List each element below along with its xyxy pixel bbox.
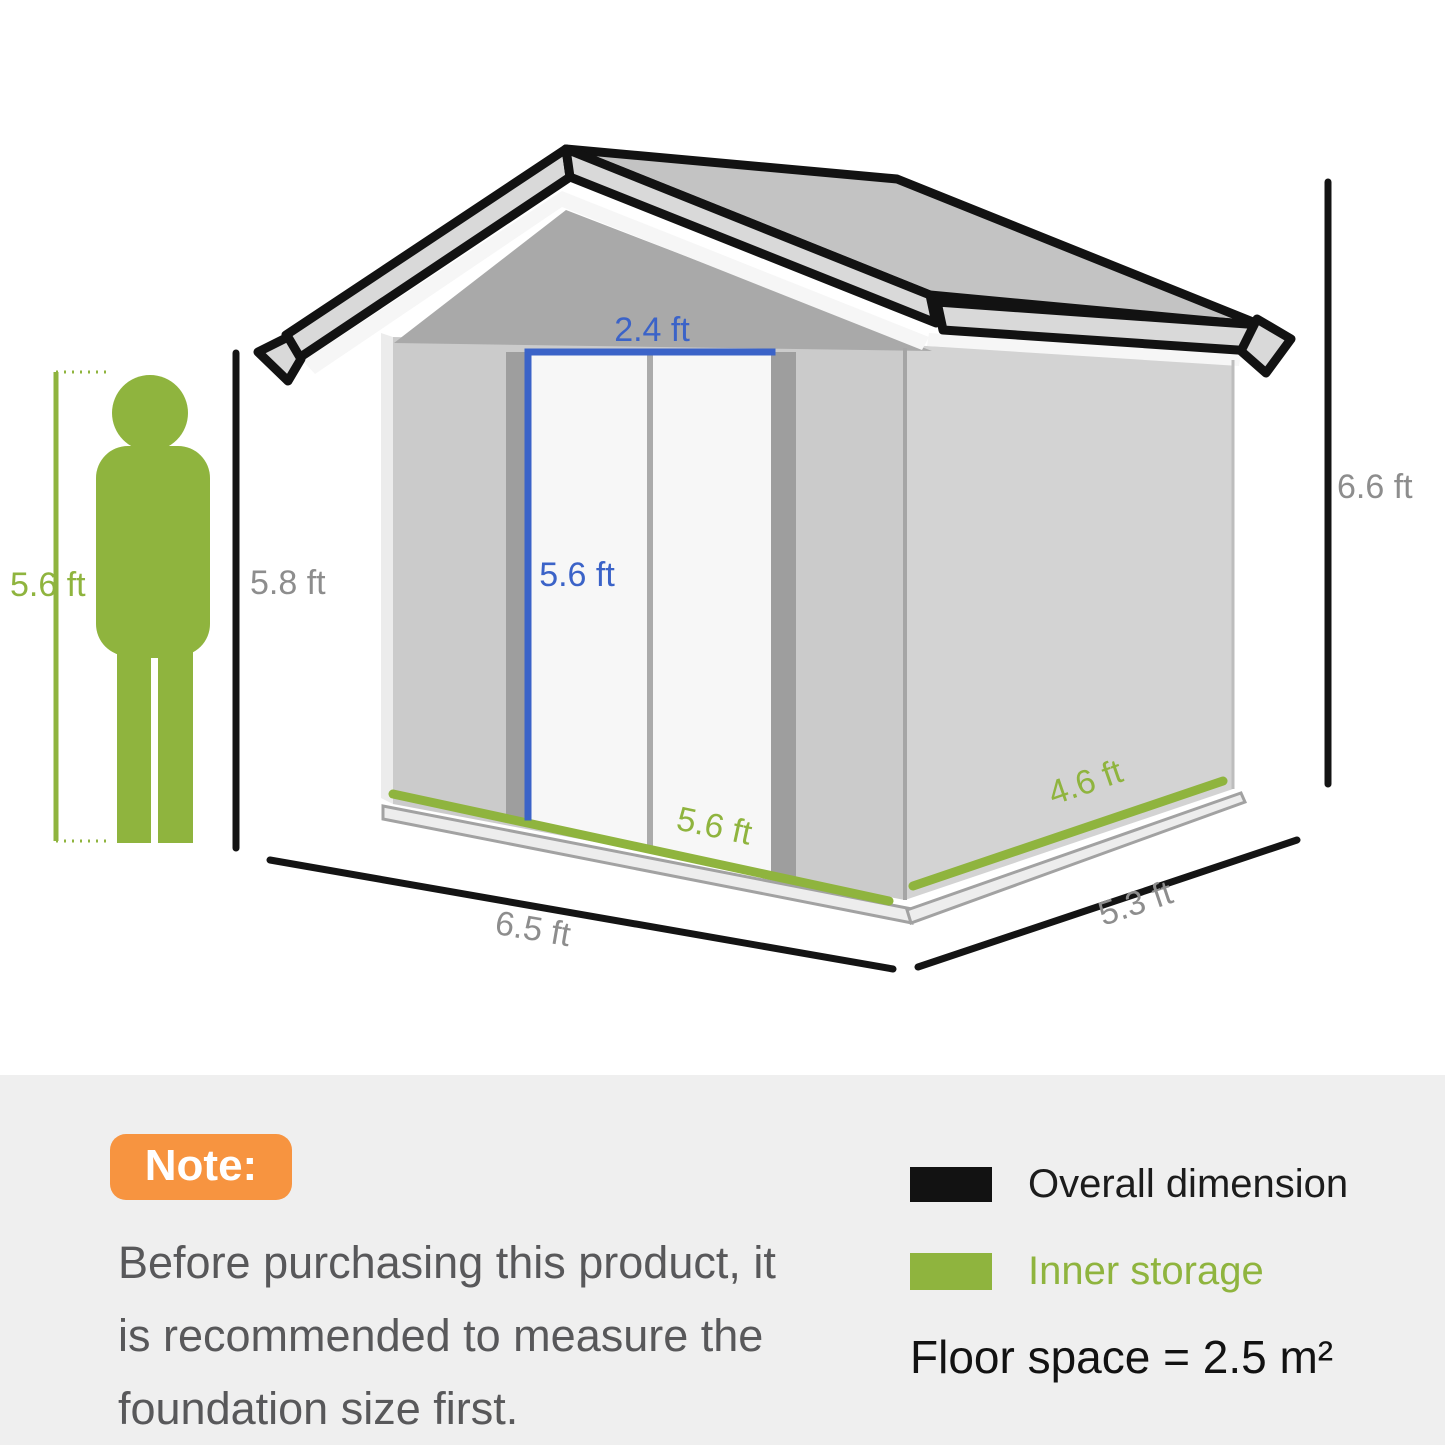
overall-depth-label: 5.3 ft xyxy=(1094,873,1178,933)
note-badge: Note: xyxy=(110,1134,292,1200)
person-leg-gap xyxy=(151,658,158,843)
door-width-label: 2.4 ft xyxy=(614,311,690,349)
eave-height-label: 5.8 ft xyxy=(250,564,326,602)
note-text-line-3: foundation size first. xyxy=(118,1372,838,1445)
sliding-door xyxy=(506,352,796,878)
person-figure xyxy=(96,375,210,843)
roof-rake-left-tip xyxy=(258,337,301,381)
floor-space-label: Floor space = 2.5 m² xyxy=(910,1330,1333,1384)
legend-swatch-overall-dimension xyxy=(910,1167,992,1202)
legend-swatch-inner-storage xyxy=(910,1253,992,1290)
roof-eave-tip xyxy=(1241,319,1291,373)
person-torso xyxy=(96,446,210,656)
front-wall-left-trim xyxy=(381,333,393,804)
door-height-label: 5.6 ft xyxy=(539,556,615,594)
note-text-line-1: Before purchasing this product, it xyxy=(118,1226,838,1299)
person-head xyxy=(112,375,188,451)
product-dimension-diagram: 2.4 ft 5.6 ft 5.6 ft 4.6 ft 6.5 ft 5.3 f… xyxy=(0,0,1445,1445)
note-text-line-2: is recommended to measure the xyxy=(118,1299,838,1372)
overall-height-label: 6.6 ft xyxy=(1337,468,1413,506)
legend-label-overall-dimension: Overall dimension xyxy=(1028,1167,1348,1202)
person-height-label: 5.6 ft xyxy=(10,566,86,604)
note-text: Before purchasing this product, it is re… xyxy=(118,1226,838,1445)
door-frame-right xyxy=(771,352,796,878)
legend-label-inner-storage: Inner storage xyxy=(1028,1253,1264,1290)
